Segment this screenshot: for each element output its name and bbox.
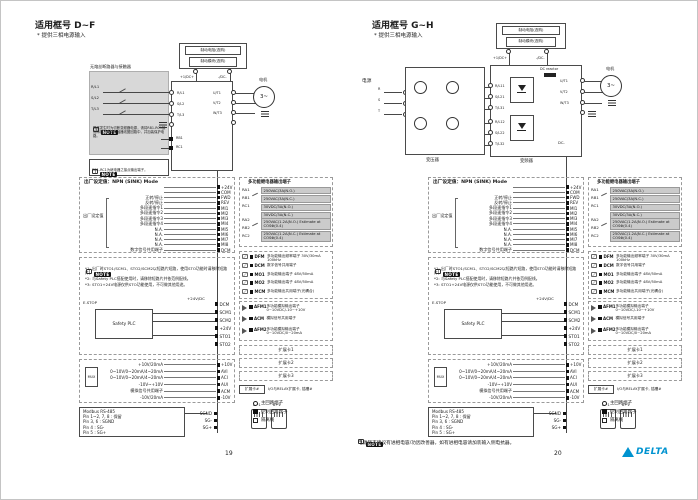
terminal-name: SCM2 <box>220 318 232 323</box>
optocoupler-icon <box>242 280 248 285</box>
terminal-spec: 多功能模拟输出端子 0~10VDC/-10~+10V <box>616 304 674 313</box>
terminal-spec: 多功能模拟输出端子 0~10VDC/-10~+10V <box>267 304 325 313</box>
terminal-name: +24V <box>569 326 581 331</box>
terminal-name: SG+ <box>203 425 212 430</box>
wire <box>164 208 216 209</box>
terminal-name: AVI <box>220 369 231 374</box>
expansion-note-box-label: 扩展卡# <box>594 387 608 392</box>
terminal-name: AFM2 <box>602 327 616 332</box>
rs485-terminal-row: SG- <box>536 417 566 424</box>
analog-output-row: AFM2 多功能模拟输出端子 0~10VDC/0~20mA <box>591 327 679 339</box>
expansion-card-boxes: 扩展卡1扩展卡2扩展卡3 <box>239 345 333 384</box>
wire <box>513 377 565 378</box>
expansion-note-box: 扩展卡# <box>588 385 614 394</box>
sto-note-line: *1: 出厂时STO1/SCM1、STO2/SCM2以短路片短路，使用STO功能… <box>85 267 229 276</box>
terminal-name: W/T3 <box>213 111 222 115</box>
input-range-label: +10V/20mA <box>450 362 512 367</box>
sto-note-line: *2: 与Safety PLC搭配使用时，请移除短路片并依范例配线。 <box>434 277 578 281</box>
terminal-name: -10V <box>569 395 580 400</box>
wire <box>384 114 402 115</box>
wire <box>384 92 402 93</box>
rs485-terminal-row: SG+ <box>536 424 566 431</box>
sto-terminals: DCM SCM1 SCM2 +24V STO1 <box>215 300 245 348</box>
ground-icon <box>608 100 616 106</box>
safety-plc-box: Safety PLC <box>444 309 502 339</box>
wire <box>164 384 216 385</box>
input-range-label: 0~10V/0~20mA/4~20mA <box>101 369 163 374</box>
transistor-output-row: DCM 数字信号共用端子 <box>591 263 679 272</box>
breaker-box <box>89 71 169 155</box>
input-range-label: 模拟信号共用端子 <box>101 388 163 394</box>
sto-terminal-row: +24V <box>215 324 245 332</box>
expansion-card-box: 扩展卡2 <box>588 358 682 368</box>
legend-label: 主回路端子 <box>610 400 632 406</box>
input-function-label: 数字信号共用端子 <box>450 247 512 253</box>
motor-label: 电机 <box>259 78 267 83</box>
wire <box>513 202 565 203</box>
input-range-label: -10V~+10V <box>450 382 512 387</box>
transistor-output-row: MO2 多功能输出端子 48V/50mA <box>591 280 679 289</box>
analog-output-row: AFM2 多功能模拟输出端子 0~10VDC/0~20mA <box>242 327 330 339</box>
terminal-name: ACM <box>602 316 616 321</box>
analog-input-row: +10V/20mA +10V <box>450 362 580 369</box>
relay-terminal-ra2: RA2 <box>591 218 599 223</box>
terminal-spec: 多功能模拟输出端子 0~10VDC/0~20mA <box>267 327 325 336</box>
sto-terminal-row: STO1 <box>215 332 245 340</box>
terminal-spec: 模拟信号共用端子 <box>267 316 325 320</box>
transistor-output-row: DFM 多功能输出频率端子 30V/30mA 100kHz <box>242 254 330 263</box>
terminal-legend: 主回路端子 控制回路端子 隔离线 <box>602 399 672 425</box>
relay-terminal-rc1: RC1 <box>591 204 599 209</box>
optocoupler-icon <box>591 263 597 268</box>
wire <box>164 229 216 230</box>
terminal-name: T/L32 <box>495 142 504 146</box>
analog-input-rows: +10V/20mA +10V 0~10V/0~20mA/4~20mA AVI 0… <box>101 362 231 402</box>
wire <box>584 81 602 82</box>
wire <box>235 113 255 114</box>
analog-input-row: 0~10V/0~20mA/4~20mA ACI <box>101 375 231 382</box>
wire <box>235 93 255 94</box>
diode-icon <box>518 85 526 91</box>
control-terminal-square <box>215 326 219 330</box>
transistor-output-row: DCM 数字信号共用端子 <box>242 263 330 272</box>
sto-terminal-row: SCM2 <box>564 316 594 324</box>
ground-terminal <box>580 110 585 115</box>
terminal-name: RB1 <box>176 136 183 140</box>
mux-box: MUX <box>434 367 447 387</box>
rs485-text-lines: Modbus RS-485Pin 1~2, 7, 8 : 保留Pin 3, 6 … <box>83 409 159 435</box>
expansion-card-box: 扩展卡1 <box>588 345 682 355</box>
diode-bar-icon <box>517 130 526 131</box>
relay-spec-chip: 30VDC/3A(N.O.) <box>610 204 680 211</box>
wire <box>164 391 216 392</box>
transformer-outline <box>405 67 485 155</box>
control-terminal-square <box>564 326 568 330</box>
wire <box>513 208 565 209</box>
wire <box>161 148 169 149</box>
terminal-name: R/L11 <box>495 84 505 88</box>
sto-terminal-row: SCM1 <box>215 308 245 316</box>
relay-spec-chip: 250VAC/1.2A(N.O.) Estimate at COSΦ(0.4) <box>610 218 680 230</box>
brake-resistor-box: 制动电阻(选购) <box>185 46 241 55</box>
wire <box>164 197 216 198</box>
legend-symbol-icon <box>253 409 258 414</box>
main-terminal <box>488 94 493 99</box>
wire <box>153 321 215 322</box>
manual-page-spread: 适用框号 D~F * 提供三相电源输入 制动电阻(选购) 制动模块(选购) +1… <box>0 0 698 500</box>
terminal-name: DCM <box>602 263 616 268</box>
rs485-text-line: Pin 5 : SG+ <box>83 430 159 435</box>
wire <box>513 218 565 219</box>
terminal-spec: 多功能输出共用端子(光耦合) <box>616 289 674 293</box>
terminal-name: U/T1 <box>213 91 221 95</box>
wire <box>513 197 565 198</box>
rs485-terminals: SGND SG- SG+ <box>536 410 566 431</box>
sto-note-line: *1: 出厂时STO1/SCM1、STO2/SCM2以短路片短路，使用STO功能… <box>434 267 578 276</box>
terminal-name: ACM <box>569 389 580 394</box>
dc-reactor-label: DC reactor <box>540 67 558 71</box>
relay-terminal-rb1: RB1 <box>242 196 250 201</box>
wire <box>103 114 169 115</box>
terminal-spec: 多功能输出端子 48V/50mA <box>616 280 674 284</box>
safety-plc-box: Safety PLC <box>95 309 153 339</box>
sto-note-line: *3: STO1+24V电源仅供STO功能使用，不可做其他用途。 <box>434 283 578 287</box>
legend-label: 隔离线 <box>610 417 623 423</box>
delta-logo: DELTA <box>622 447 669 457</box>
legend-label: 控制回路端子 <box>261 409 287 415</box>
wire <box>164 192 216 193</box>
motor-symbol: 3~ <box>607 83 615 89</box>
input-range-label: 模拟信号共用端子 <box>450 388 512 394</box>
relay1-spec-chips: 250VAC/3A(N.O.)250VAC/3A(N.C.)30VDC/3A(N… <box>261 187 331 220</box>
control-terminal-square <box>215 318 219 322</box>
optocoupler-icon <box>591 254 597 259</box>
wire <box>164 187 216 188</box>
relay2-spec-chips: 250VAC/1.2A(N.O.) Estimate at COSΦ(0.4)2… <box>261 218 331 243</box>
terminal-name: SG- <box>205 418 212 423</box>
wire <box>502 335 564 336</box>
wire <box>566 157 567 177</box>
main-terminal <box>488 83 493 88</box>
dc-plus-terminal <box>193 69 198 74</box>
optocoupler-icon <box>242 272 248 277</box>
relay-spec-chip: 250VAC/3A(N.O.) <box>261 187 331 194</box>
expansion-note-text: I/O与RELAY扩展卡, 插槽# <box>617 387 661 391</box>
sto-note-line: *3: STO1+24V电源仅供STO功能使用，不可做其他用途。 <box>85 283 229 287</box>
dc-minus-label: -/DC- <box>536 56 545 60</box>
wire <box>164 371 216 372</box>
control-terminal-square <box>214 426 218 430</box>
analog-input-row: +10V/20mA +10V <box>101 362 231 369</box>
page-number: 20 <box>554 450 562 457</box>
wire <box>513 239 565 240</box>
wire <box>502 313 564 314</box>
input-function-label: 数字信号共用端子 <box>101 247 163 253</box>
wire <box>513 371 565 372</box>
page-frame-g-h: 适用框号 G~H * 提供三相电源输入 电源 R S T 变压器 制动电阻(选购… <box>350 1 698 500</box>
terminal-name: +10V <box>569 362 580 367</box>
terminal-name: RC1 <box>176 145 183 149</box>
terminal-spec: 数字信号共用端子 <box>267 263 325 267</box>
estop-label: E.STOP <box>83 301 97 306</box>
terminal-name: DCM <box>569 302 579 307</box>
terminal-name: DFM <box>253 254 267 259</box>
wire <box>164 364 216 365</box>
phase-label: R <box>378 87 380 91</box>
legend-symbol-icon <box>602 409 607 414</box>
optocoupler-icon <box>591 272 597 277</box>
sto-supply-label: +24V/DC <box>187 297 205 302</box>
input-range-label: +10V/20mA <box>101 362 163 367</box>
inverter-label: 变频器 <box>520 159 533 164</box>
rs485-text-line: Pin 5 : SG+ <box>432 430 508 435</box>
transformer-winding-icon <box>414 81 427 94</box>
terminal-name: SGND <box>549 411 561 416</box>
transformer-winding-icon <box>414 117 427 130</box>
transistor-output-row: DFM 多功能输出频率端子 30V/30mA 100kHz <box>591 254 679 263</box>
control-terminal-square <box>564 310 568 314</box>
analog-input-row: 模拟信号共用端子 ACM <box>450 388 580 395</box>
main-terminal <box>488 119 493 124</box>
main-terminal-s <box>169 101 174 106</box>
relay-terminal-ra1: RA1 <box>242 188 250 193</box>
terminal-name: SG- <box>554 418 561 423</box>
terminal-name: T/L31 <box>495 106 504 110</box>
input-phase-label: R/L1 <box>91 85 99 89</box>
transformer-label: 变压器 <box>426 158 439 163</box>
mux-box: MUX <box>85 367 98 387</box>
wire <box>164 397 216 398</box>
terminal-name: STO2 <box>569 342 580 347</box>
page-subtitle: * 提供三相电源输入 <box>374 33 423 40</box>
legend-label: 隔离线 <box>261 417 274 423</box>
wire <box>164 244 216 245</box>
analog-output-row: ACM 模拟信号共用端子 <box>242 316 330 328</box>
relay-terminal-rc2: RC2 <box>242 234 250 239</box>
wire <box>164 218 216 219</box>
sto-terminal-row: SCM1 <box>564 308 594 316</box>
wire <box>513 192 565 193</box>
terminal-name: -10V <box>220 395 231 400</box>
control-terminal-square <box>563 426 567 430</box>
analog-output-rows: AFM1 多功能模拟输出端子 0~10VDC/-10~+10V ACM 模拟信号… <box>591 304 679 339</box>
relay-terminal-rb2: RB2 <box>242 226 250 231</box>
sto-supply-label: +24V/DC <box>536 297 554 302</box>
main-terminal-t <box>169 112 174 117</box>
motor-icon: 3~ <box>253 86 275 108</box>
relay-spec-chip: 250VAC/1.2A(N.C.) Estimate at COSΦ(0.4) <box>610 231 680 243</box>
relay1-spec-chips: 250VAC/3A(N.O.)250VAC/3A(N.C.)30VDC/3A(N… <box>610 187 680 220</box>
digital-input-row: 数字信号共用端子 DCM <box>450 248 580 253</box>
control-terminal-square <box>214 412 218 416</box>
terminal-spec: 多功能模拟输出端子 0~10VDC/0~20mA <box>616 327 674 336</box>
optocoupler-icon <box>242 254 248 259</box>
relay-spec-chip: 30VDC/3A(N.O.) <box>261 204 331 211</box>
analog-output-row: AFM1 多功能模拟输出端子 0~10VDC/-10~+10V <box>242 304 330 316</box>
expansion-note-box: 扩展卡# <box>239 385 265 394</box>
brake-resistor-box: 制动电阻(选购) <box>502 26 560 35</box>
control-terminal-square <box>563 412 567 416</box>
rs485-terminal-row: SGND <box>187 410 217 417</box>
brake-module-box: 制动模块(选购) <box>506 37 556 47</box>
wire <box>513 384 565 385</box>
rs485-terminal-row: SG+ <box>187 424 217 431</box>
transformer-winding-icon <box>446 81 459 94</box>
mux-label: MUX <box>437 375 445 379</box>
input-range-label: 0~10V/0~20mA/4~20mA <box>101 375 163 380</box>
terminal-name: V/T2 <box>560 90 568 94</box>
ground-icon <box>261 111 269 117</box>
dc-minus-inner-label: DC- <box>558 141 565 145</box>
terminal-spec: 多功能输出端子 48V/50mA <box>267 280 325 284</box>
wire <box>513 244 565 245</box>
rs485-terminals: SGND SG- SG+ <box>187 410 217 431</box>
control-terminal-square <box>564 318 568 322</box>
wire <box>103 92 169 93</box>
rs485-text-lines: Modbus RS-485Pin 1~2, 7, 8 : 保留Pin 3, 6 … <box>432 409 508 435</box>
motor-label: 电机 <box>606 67 614 72</box>
terminal-name: MO1 <box>253 272 267 277</box>
terminal-name: DCM <box>569 248 580 253</box>
relay-terminal-rc1: RC1 <box>242 204 250 209</box>
legend-row: 主回路端子 <box>602 399 672 408</box>
wire <box>161 139 169 140</box>
sto-terminal-row: STO1 <box>564 332 594 340</box>
optocoupler-icon <box>242 289 248 294</box>
transistor-output-rows: DFM 多功能输出频率端子 30V/30mA 100kHz DCM 数字信号共用… <box>242 254 330 298</box>
analog-input-row: -10V~+10V AUI <box>101 381 231 388</box>
dc-plus-terminal <box>506 49 511 54</box>
safety-plc-label: Safety PLC <box>461 322 484 327</box>
terminal-name: AUI <box>220 382 231 387</box>
analog-output-row: AFM1 多功能模拟输出端子 0~10VDC/-10~+10V <box>591 304 679 316</box>
estop-label: E.STOP <box>432 301 446 306</box>
ground-terminal <box>169 122 174 127</box>
relay-terminal-ra1: RA1 <box>591 188 599 193</box>
wire <box>164 213 216 214</box>
wire <box>513 391 565 392</box>
wire <box>164 250 216 251</box>
terminal-name: STO1 <box>569 334 580 339</box>
terminal-name: DCM <box>220 302 230 307</box>
terminal-name: U/T1 <box>560 79 568 83</box>
analog-output-row: ACM 模拟信号共用端子 <box>591 316 679 328</box>
control-terminal-square <box>564 334 568 338</box>
relay-spec-chip: 250VAC/1.2A(N.C.) Estimate at COSΦ(0.4) <box>261 231 331 243</box>
terminal-name: DCM <box>220 248 231 253</box>
terminal-name: S/L2 <box>177 102 184 106</box>
phase-label: T <box>378 109 380 113</box>
control-terminal-square <box>215 342 219 346</box>
wire <box>513 234 565 235</box>
relay-section-title: 多功能继电器输出端子 <box>248 180 291 185</box>
wire <box>164 202 216 203</box>
terminal-name: S/L21 <box>495 95 505 99</box>
main-terminal-r <box>169 90 174 95</box>
brake-resistor-label: 制动电阻(选购) <box>200 48 225 53</box>
sto-note-lines: *1: 出厂时STO1/SCM1、STO2/SCM2以短路片短路，使用STO功能… <box>434 267 578 289</box>
control-terminal-square <box>563 419 567 423</box>
terminal-name: AFM1 <box>602 304 616 309</box>
legend-symbol-icon <box>602 401 607 406</box>
relay-note-text: RB1-RC1为继电器之接点输出端子。 <box>92 168 166 172</box>
terminal-name: MO2 <box>253 280 267 285</box>
expansion-card-box: 扩展卡3 <box>239 371 333 381</box>
terminal-name: +10V <box>220 362 231 367</box>
wire <box>164 223 216 224</box>
analog-input-row: 0~10V/0~20mA/4~20mA AVI <box>450 368 580 375</box>
wire <box>584 103 602 104</box>
relay-section-title: 多功能继电器输出端子 <box>597 180 640 185</box>
terminal-spec: 多功能输出共用端子(光耦合) <box>267 289 325 293</box>
page-title: 适用框号 D~F <box>35 21 95 32</box>
wire <box>164 234 216 235</box>
terminal-name: W/T3 <box>560 101 569 105</box>
digital-input-rows: +24V COM 正转/停止 FWD 反转/停止 REV <box>101 185 231 253</box>
terminal-name: S/L22 <box>495 131 505 135</box>
terminal-name: V/T2 <box>213 101 221 105</box>
wire <box>502 321 564 322</box>
terminal-legend: 主回路端子 控制回路端子 隔离线 <box>253 399 323 425</box>
terminal-name: +24V <box>220 326 232 331</box>
legend-symbol-icon <box>253 418 258 423</box>
analog-input-row: -10V~+10V AUI <box>450 381 580 388</box>
terminal-name: MO1 <box>602 272 616 277</box>
terminal-name: T/L3 <box>177 113 184 117</box>
terminal-spec: 多功能输出频率端子 30V/30mA 100kHz <box>616 254 674 263</box>
dc-minus-label: -/DC- <box>218 75 227 79</box>
wire <box>384 103 402 104</box>
wire <box>164 239 216 240</box>
analog-output-rows: AFM1 多功能模拟输出端子 0~10VDC/-10~+10V ACM 模拟信号… <box>242 304 330 339</box>
motor-symbol: 3~ <box>260 94 268 100</box>
dc-minus-terminal <box>227 69 232 74</box>
main-terminal <box>488 105 493 110</box>
wire <box>513 223 565 224</box>
brake-module-box: 制动模块(选购) <box>189 57 237 67</box>
terminal-name: STO1 <box>220 334 231 339</box>
terminal-name: MCM <box>253 289 267 294</box>
terminal-name: AVI <box>569 369 580 374</box>
terminal-name: AUI <box>569 382 580 387</box>
rs485-terminal-row: SG- <box>187 417 217 424</box>
terminal-name: SGND <box>200 411 212 416</box>
terminal-name: AFM1 <box>253 304 267 309</box>
ground-icon <box>159 122 167 128</box>
optocoupler-icon <box>591 289 597 294</box>
breaker-box-title: 无熔丝断路器与接触器 <box>90 65 131 70</box>
analog-input-row: 0~10V/0~20mA/4~20mA AVI <box>101 368 231 375</box>
terminal-name: ACI <box>220 375 231 380</box>
input-phase-label: T/L3 <box>91 107 99 111</box>
control-terminal-square <box>215 302 219 306</box>
control-terminal-square <box>215 334 219 338</box>
diode-icon <box>518 123 526 129</box>
sto-terminals: DCM SCM1 SCM2 +24V STO1 <box>564 300 594 348</box>
ground-icon <box>588 111 596 117</box>
sto-terminal-row: +24V <box>564 324 594 332</box>
analog-input-row: -10V/20mA -10V <box>450 394 580 401</box>
brake-resistor-label: 制动电阻(选购) <box>518 28 543 33</box>
terminal-spec: 多功能输出端子 48V/50mA <box>267 272 325 276</box>
expansion-card-box: 扩展卡3 <box>588 371 682 381</box>
sto-note-lines: *1: 出厂时STO1/SCM1、STO2/SCM2以短路片短路，使用STO功能… <box>85 267 229 289</box>
legend-label: 控制回路端子 <box>610 409 636 415</box>
legend-row: 控制回路端子 <box>253 408 323 417</box>
terminal-name: SCM1 <box>569 310 581 315</box>
power-source-label: 电源 <box>362 79 371 85</box>
terminal-name: AFM2 <box>253 327 267 332</box>
